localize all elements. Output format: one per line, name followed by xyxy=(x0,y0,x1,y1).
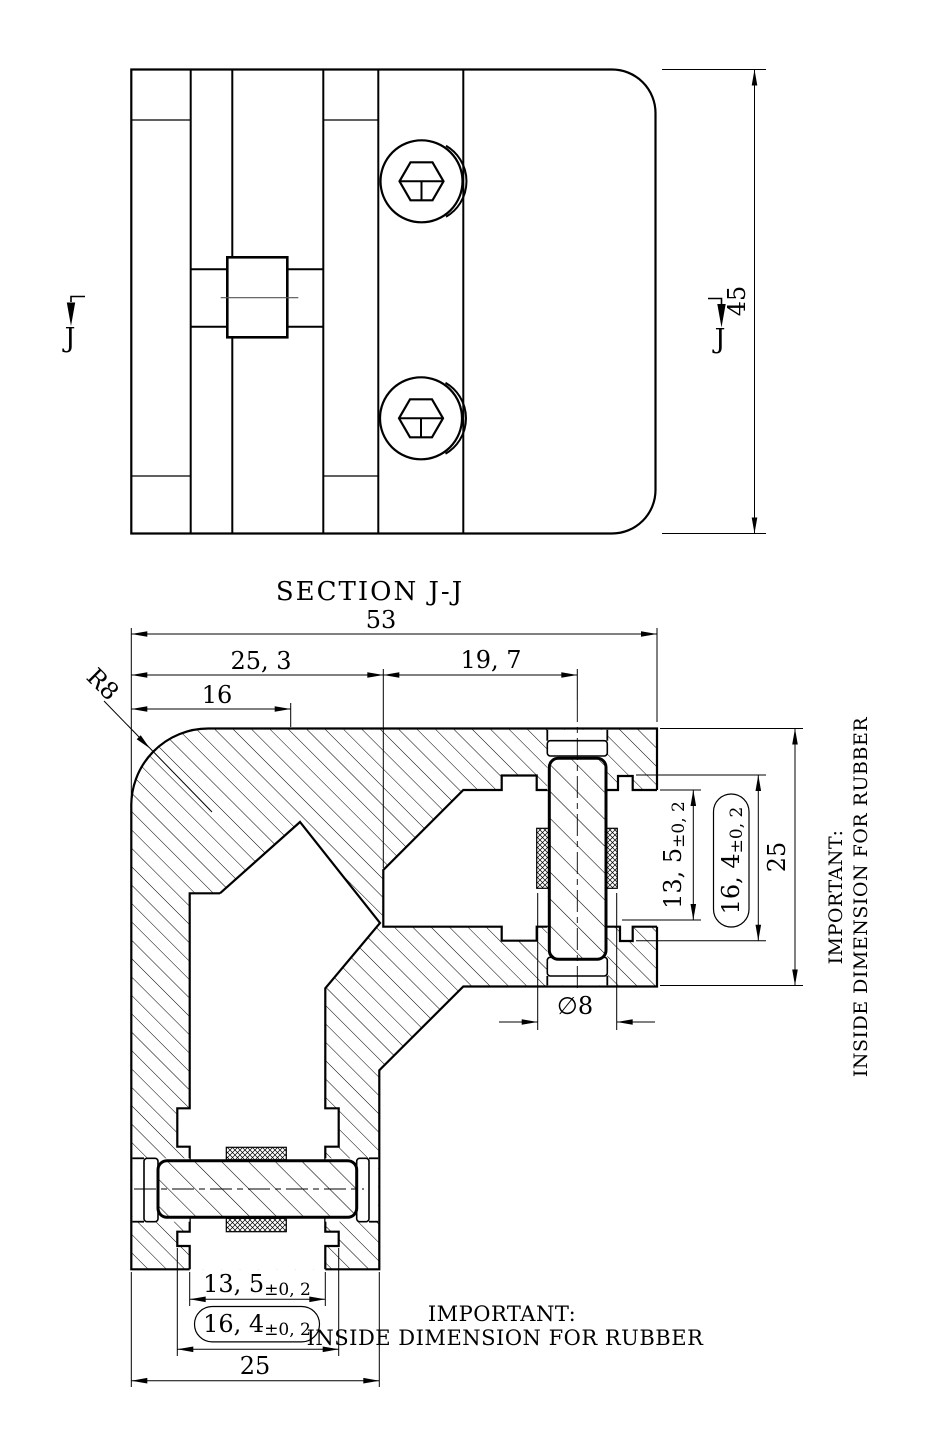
dim-45-label: 45 xyxy=(723,286,751,317)
bolt-cap-right xyxy=(357,1158,369,1221)
note-bottom-line2: INSIDE DIMENSION FOR RUBBER xyxy=(307,1326,704,1350)
dim-gap-right-value: 13, 5 xyxy=(659,848,687,909)
section-view: SECTION J-J xyxy=(81,577,872,1387)
socket-screw-top xyxy=(381,140,467,222)
dim-rubber-bottom-value: 16, 4 xyxy=(203,1310,264,1338)
dim-r8-label: R8 xyxy=(81,663,124,706)
rubber-pad-bottom xyxy=(226,1218,286,1231)
dim-gap-bottom: 13, 5±0, 2 xyxy=(190,1270,326,1306)
dim-45: 45 xyxy=(662,70,766,534)
svg-text:13, 5±0, 2: 13, 5±0, 2 xyxy=(203,1270,311,1300)
section-marker-left-label: J xyxy=(62,323,76,354)
note-right: IMPORTANT: INSIDE DIMENSION FOR RUBBER xyxy=(825,717,872,1077)
bolt-right xyxy=(537,700,618,992)
note-right-line2: INSIDE DIMENSION FOR RUBBER xyxy=(850,717,872,1077)
cad-drawing: 45 J J SECTION J-J xyxy=(0,0,932,1454)
dim-rubber-bottom-tol: ±0, 2 xyxy=(264,1320,311,1340)
rubber-pad-top xyxy=(226,1147,286,1160)
dim-19-7-label: 19, 7 xyxy=(460,646,521,674)
svg-text:13, 5±0, 2: 13, 5±0, 2 xyxy=(659,801,689,909)
drawing-sheet: 45 J J SECTION J-J xyxy=(0,0,932,1454)
top-view: 45 J J xyxy=(62,70,766,534)
rubber-pad-left xyxy=(537,828,550,888)
dim-bolt-dia-label: ∅8 xyxy=(557,992,593,1020)
socket-screw-bottom xyxy=(380,377,466,459)
rubber-pad-right xyxy=(606,828,617,888)
dim-gap-right-tol: ±0, 2 xyxy=(669,801,689,848)
bolt-cap-left xyxy=(144,1158,158,1221)
dim-25-3-label: 25, 3 xyxy=(230,647,291,675)
dim-16: 16 xyxy=(131,681,290,727)
dim-25-right-label: 25 xyxy=(763,842,791,873)
section-marker-right-label: J xyxy=(712,324,726,355)
top-view-outline xyxy=(131,70,655,534)
dim-rubber-right-value: 16, 4 xyxy=(717,853,745,914)
dim-rubber-right-tol: ±0, 2 xyxy=(727,807,747,854)
dim-53-label: 53 xyxy=(366,606,397,634)
dim-16-label: 16 xyxy=(202,681,233,709)
note-right-line1: IMPORTANT: xyxy=(825,830,847,965)
note-bottom: IMPORTANT: INSIDE DIMENSION FOR RUBBER xyxy=(307,1302,704,1350)
section-marker-left: J xyxy=(62,297,85,355)
dim-25-bottom-label: 25 xyxy=(240,1352,271,1380)
section-title: SECTION J-J xyxy=(276,577,464,607)
note-bottom-line1: IMPORTANT: xyxy=(428,1302,576,1326)
dim-gap-bottom-value: 13, 5 xyxy=(203,1270,264,1298)
dim-gap-bottom-tol: ±0, 2 xyxy=(264,1280,311,1300)
section-marker-right: J xyxy=(708,299,726,356)
